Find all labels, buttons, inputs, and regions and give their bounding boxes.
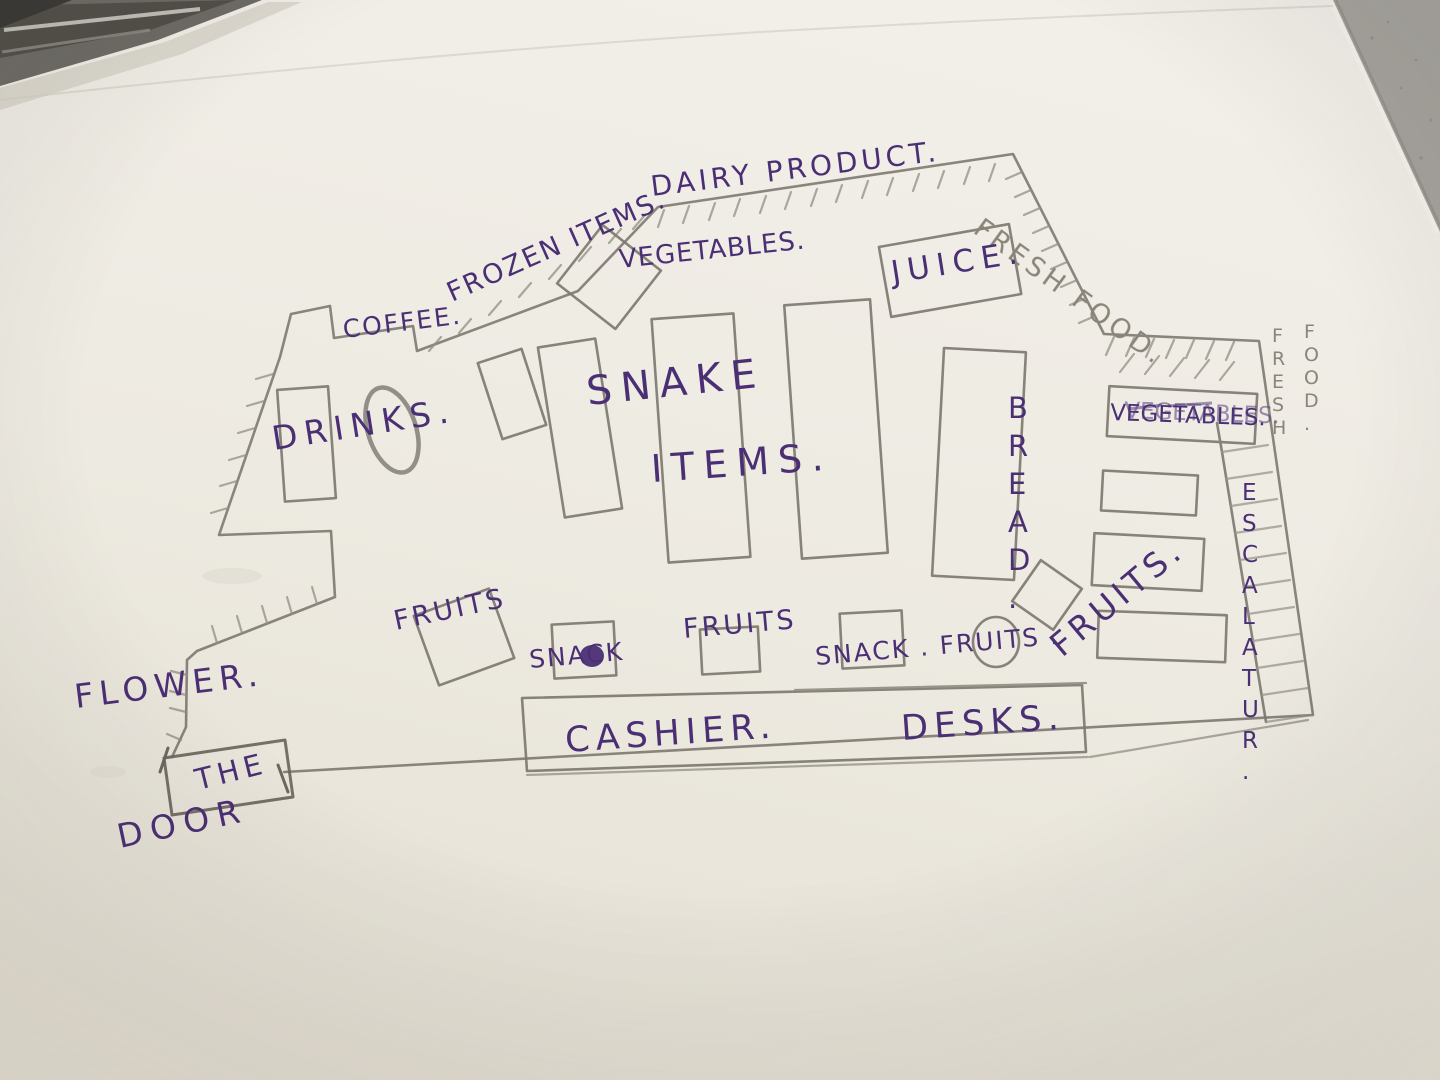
paper-smudge-1 xyxy=(202,568,262,584)
snack-ink-blot xyxy=(580,645,604,667)
hand-drawn-supermarket-floor-plan-photo: FRESH FOOD. FRESH FOOD. DAIRY PRODUCT. F… xyxy=(0,0,1440,1080)
paper-smudge-2 xyxy=(90,766,126,778)
